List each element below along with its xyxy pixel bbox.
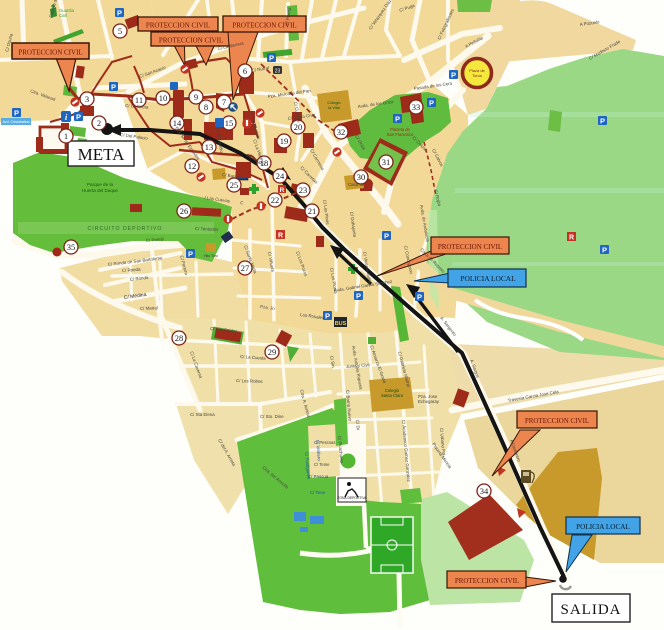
svg-text:BUS: BUS [335, 321, 347, 327]
svg-text:2: 2 [97, 118, 101, 128]
svg-text:6: 6 [243, 66, 247, 76]
svg-text:P: P [14, 109, 19, 118]
svg-text:7: 7 [222, 97, 226, 107]
svg-text:29: 29 [268, 347, 277, 357]
svg-text:P: P [395, 115, 400, 124]
svg-text:34: 34 [480, 486, 489, 496]
svg-text:Echegaray: Echegaray [418, 399, 440, 404]
svg-text:la Villa: la Villa [328, 105, 340, 110]
svg-text:23: 23 [275, 69, 281, 75]
svg-text:META: META [78, 145, 126, 164]
svg-text:PROTECCION CIVIL: PROTECCION CIVIL [455, 577, 519, 585]
svg-text:8: 8 [204, 102, 208, 112]
svg-text:CIRCUITO DEPORTIVO: CIRCUITO DEPORTIVO [88, 226, 163, 232]
svg-text:P: P [76, 113, 81, 122]
svg-text:28: 28 [175, 333, 184, 343]
svg-text:C/ Sta Elena: C/ Sta Elena [190, 412, 215, 417]
svg-text:P: P [188, 250, 193, 259]
svg-text:PROTECCION CIVIL: PROTECCION CIVIL [146, 22, 210, 30]
svg-text:SALIDA: SALIDA [561, 602, 622, 618]
svg-text:32: 32 [337, 127, 346, 137]
svg-text:19: 19 [280, 136, 289, 146]
svg-text:POLICIA LOCAL: POLICIA LOCAL [460, 274, 516, 283]
svg-text:9: 9 [194, 92, 198, 102]
svg-text:PROTECCION CIVIL: PROTECCION CIVIL [18, 49, 82, 57]
svg-text:P: P [600, 117, 605, 126]
svg-text:Avd. Cristobalina: Avd. Cristobalina [2, 120, 29, 124]
svg-text:San Francisco: San Francisco [387, 132, 414, 137]
svg-text:R: R [280, 187, 285, 194]
svg-text:P: P [325, 312, 330, 321]
svg-text:5: 5 [118, 26, 122, 36]
svg-text:P: P [417, 293, 422, 302]
svg-text:25: 25 [230, 180, 239, 190]
svg-text:PROTECCION CIVIL: PROTECCION CIVIL [525, 417, 589, 425]
svg-text:P: P [356, 292, 361, 301]
svg-text:PROTECCION CIVIL: PROTECCION CIVIL [159, 37, 223, 45]
svg-text:P: P [384, 232, 389, 241]
svg-text:P: P [111, 83, 116, 92]
svg-text:33: 33 [412, 102, 421, 112]
svg-text:C/ Los Robos: C/ Los Robos [236, 378, 264, 384]
svg-text:Civil: Civil [59, 13, 67, 18]
svg-text:POLICIA LOCAL: POLICIA LOCAL [576, 523, 630, 531]
svg-text:12: 12 [188, 161, 197, 171]
svg-text:31: 31 [382, 157, 391, 167]
svg-text:23: 23 [299, 185, 308, 195]
svg-text:P: P [429, 99, 434, 108]
svg-text:Hilo Toro: Hilo Toro [204, 254, 218, 258]
svg-text:20: 20 [294, 122, 303, 132]
svg-text:C/ Teme: C/ Teme [314, 462, 330, 467]
svg-text:22: 22 [271, 195, 280, 205]
svg-text:P: P [117, 9, 122, 18]
svg-text:P: P [269, 54, 274, 63]
svg-text:P: P [602, 246, 607, 255]
svg-text:15: 15 [225, 118, 234, 128]
svg-text:C/ Pascua: C/ Pascua [308, 474, 329, 479]
svg-text:10: 10 [159, 93, 168, 103]
svg-text:C/ Dr: C/ Dr [355, 420, 361, 431]
svg-text:30: 30 [357, 172, 366, 182]
svg-text:24: 24 [276, 171, 285, 181]
svg-text:R: R [569, 235, 574, 242]
svg-text:P: P [451, 71, 456, 80]
svg-text:27: 27 [241, 263, 250, 273]
svg-text:C/ Tene: C/ Tene [310, 490, 326, 495]
svg-text:C/ Matral: C/ Matral [140, 305, 158, 311]
svg-text:13: 13 [205, 142, 214, 152]
svg-text:3: 3 [85, 94, 89, 104]
svg-text:Santa Clara: Santa Clara [381, 393, 404, 398]
svg-text:ZONA DEPORTIVA: ZONA DEPORTIVA [337, 496, 367, 500]
svg-text:C/ Tentudos: C/ Tentudos [195, 226, 219, 232]
svg-text:Huerta del Duque: Huerta del Duque [82, 188, 118, 193]
svg-text:26: 26 [180, 206, 189, 216]
svg-text:Parque de la: Parque de la [87, 182, 113, 187]
svg-text:1: 1 [64, 131, 68, 141]
svg-text:21: 21 [308, 206, 317, 216]
svg-text:Casa de: Casa de [348, 182, 365, 187]
svg-text:35: 35 [67, 242, 76, 252]
svg-text:C/ Sto. Dine: C/ Sto. Dine [260, 414, 284, 419]
svg-text:PROTECCION CIVIL: PROTECCION CIVIL [438, 243, 502, 251]
svg-text:Toros: Toros [472, 73, 482, 78]
svg-text:R: R [278, 233, 283, 240]
